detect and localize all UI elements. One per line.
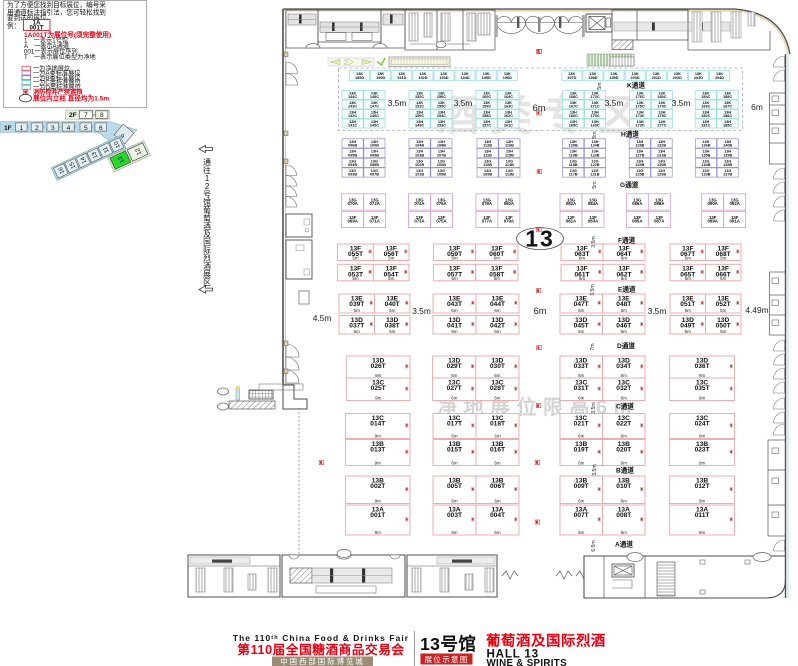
svg-text:8: 8 [100,112,104,119]
svg-text:9m: 9m [699,530,706,535]
svg-text:WINE & SPIRITS: WINE & SPIRITS [487,658,568,666]
svg-text:区: 区 [203,278,211,287]
svg-text:5m: 5m [720,308,727,313]
svg-text:108B: 108B [437,144,446,148]
svg-text:180C: 180C [657,95,666,99]
svg-text:076A: 076A [436,201,446,206]
svg-text:009T: 009T [574,483,589,490]
svg-text:175C: 175C [636,105,645,109]
svg-text:9m: 9m [699,461,706,466]
svg-text:106B: 106B [437,163,446,167]
svg-text:9m: 9m [699,373,706,378]
svg-text:080A: 080A [504,201,514,206]
svg-text:6m: 6m [451,434,458,439]
svg-text:155C: 155C [437,105,446,109]
svg-text:125B: 125B [635,173,644,177]
svg-text:112B: 112B [483,144,492,148]
svg-text:003T: 003T [447,512,462,519]
svg-text:178C: 178C [657,114,666,118]
svg-text:148C: 148C [370,95,379,99]
svg-text:040T: 040T [385,301,400,308]
svg-text:161C: 161C [504,124,513,128]
svg-text:6m: 6m [451,461,458,466]
svg-text:The 110th China Food & Drinks: The 110th China Food & Drinks Fair [233,633,409,643]
svg-text:036T: 036T [695,363,710,370]
svg-text:135B: 135B [701,153,710,157]
svg-text:077A: 077A [482,219,492,224]
svg-text:083A: 083A [588,219,598,224]
svg-text:B通道: B通道 [616,466,634,475]
svg-text:136B: 136B [701,144,710,148]
svg-text:173C: 173C [636,124,645,128]
svg-text:3.5m: 3.5m [590,284,596,296]
svg-text:012T: 012T [695,483,710,490]
svg-text:5: 5 [84,125,88,132]
svg-text:3: 3 [51,125,55,132]
svg-text:051T: 051T [680,301,695,308]
svg-text:195D: 195D [482,76,491,80]
svg-text:032T: 032T [616,385,631,392]
svg-text:147C: 147C [370,105,379,109]
svg-text:6m: 6m [621,434,628,439]
svg-text:5m: 5m [388,256,395,261]
svg-text:为了方便您找到目标展位，编号采: 为了方便您找到目标展位，编号采 [7,0,106,9]
svg-text:130B: 130B [657,163,666,167]
svg-text:143C: 143C [348,105,357,109]
svg-text:展位示意图: 展位示意图 [425,654,469,664]
svg-text:5m: 5m [352,276,359,281]
svg-text:197D: 197D [567,76,576,80]
svg-text:128B: 128B [635,144,644,148]
svg-text:13: 13 [525,226,555,252]
svg-text:069A: 069A [348,219,358,224]
svg-text:140B: 140B [723,144,732,148]
svg-text:075A: 075A [436,219,446,224]
svg-text:094B: 094B [348,163,357,167]
svg-text:120B: 120B [569,144,578,148]
svg-text:098B: 098B [370,163,379,167]
svg-text:021T: 021T [574,421,589,428]
svg-text:164C: 164C [504,95,513,99]
svg-text:024T: 024T [695,421,710,428]
svg-text:5m: 5m [597,82,603,89]
svg-text:002T: 002T [370,483,385,490]
svg-text:192D: 192D [418,76,427,80]
svg-text:101B: 101B [415,173,424,177]
svg-text:174C: 174C [636,114,645,118]
svg-text:190D: 190D [376,76,385,80]
svg-text:121B: 121B [590,173,599,177]
svg-text:089A: 089A [708,219,718,224]
svg-text:151C: 151C [415,105,424,109]
svg-text:5m: 5m [720,256,727,261]
svg-text:6m: 6m [578,396,585,401]
svg-text:中国西部国际博览城: 中国西部国际博览城 [280,657,365,666]
svg-text:129B: 129B [657,173,666,177]
svg-text:193D: 193D [439,76,448,80]
svg-text:044T: 044T [490,301,505,308]
svg-text:018T: 018T [490,421,505,428]
svg-text:123B: 123B [590,153,599,157]
svg-text:6m: 6m [578,329,585,334]
svg-text:9m: 9m [375,434,382,439]
svg-text:013T: 013T [370,447,385,454]
svg-text:105B: 105B [437,173,446,177]
svg-text:126B: 126B [635,163,644,167]
svg-text:6m: 6m [451,396,458,401]
svg-text:5m: 5m [388,276,395,281]
svg-text:9m: 9m [375,530,382,535]
svg-text:005T: 005T [447,483,462,490]
svg-text:6m: 6m [494,329,501,334]
svg-text:6m: 6m [578,461,585,466]
svg-text:079A: 079A [504,219,514,224]
svg-text:001T: 001T [370,512,385,519]
svg-text:162C: 162C [504,114,513,118]
svg-text:187C: 187C [723,105,732,109]
svg-text:152C: 152C [415,95,424,99]
svg-text:134B: 134B [701,163,710,167]
svg-text:182C: 182C [701,114,710,118]
svg-text:G通道: G通道 [620,180,639,189]
svg-text:033T: 033T [574,363,589,370]
svg-text:087A: 087A [654,219,664,224]
svg-text:F通道: F通道 [618,236,636,245]
svg-text:034T: 034T [616,363,631,370]
svg-text:3.5m: 3.5m [648,306,667,316]
svg-text:189D: 189D [355,76,364,80]
svg-text:122B: 122B [590,163,599,167]
svg-text:202D: 202D [673,76,682,80]
svg-text:4: 4 [67,125,71,132]
svg-text:023T: 023T [695,447,710,454]
svg-text:5m: 5m [592,131,598,138]
svg-text:177C: 177C [657,124,666,128]
svg-text:028T: 028T [490,385,505,392]
svg-text:039T: 039T [349,301,364,308]
svg-text:111B: 111B [483,153,492,157]
svg-text:096B: 096B [348,144,357,148]
svg-text:006T: 006T [490,483,505,490]
svg-text:100B: 100B [370,144,379,148]
svg-text:166C: 166C [569,114,578,118]
svg-text:6m: 6m [451,499,458,504]
svg-text:6m: 6m [621,308,628,313]
svg-text:2: 2 [35,125,39,132]
svg-text:5m: 5m [389,329,396,334]
svg-text:158C: 158C [482,114,491,118]
svg-text:017T: 017T [447,421,462,428]
svg-text:6m: 6m [579,276,586,281]
svg-text:6m: 6m [621,530,628,535]
svg-text:5m: 5m [685,256,692,261]
svg-text:176C: 176C [636,95,645,99]
svg-text:6m: 6m [621,396,628,401]
svg-text:022T: 022T [616,421,631,428]
svg-text:004T: 004T [490,512,505,519]
svg-text:198D: 198D [588,76,597,80]
svg-text:078A: 078A [482,201,492,206]
svg-text:073A: 073A [414,219,424,224]
svg-text:6m: 6m [494,256,501,261]
svg-text:6m: 6m [578,530,585,535]
svg-text:048T: 048T [616,301,631,308]
svg-text:6m: 6m [621,329,628,334]
svg-text:081A: 081A [566,219,576,224]
svg-text:194D: 194D [461,76,470,80]
svg-text:3.5m: 3.5m [592,464,598,476]
svg-text:3.5m: 3.5m [454,98,473,108]
svg-text:例：: 例： [7,21,20,30]
svg-text:183C: 183C [701,105,710,109]
svg-text:172C: 172C [591,95,600,99]
svg-text:6m: 6m [494,396,501,401]
svg-text:026T: 026T [371,363,386,370]
svg-text:5m: 5m [354,308,361,313]
svg-text:H通道: H通道 [621,130,639,139]
svg-text:6m: 6m [451,276,458,281]
svg-text:6m: 6m [578,499,585,504]
svg-text:184C: 184C [701,95,710,99]
svg-text:6m: 6m [494,308,501,313]
svg-text:6m: 6m [494,373,501,378]
svg-text:6m: 6m [578,373,585,378]
svg-text:124B: 124B [590,144,599,148]
svg-text:090A: 090A [708,201,718,206]
svg-text:088A: 088A [654,201,664,206]
svg-text:5m: 5m [354,329,361,334]
svg-text:114B: 114B [505,163,514,167]
svg-text:196D: 196D [503,76,512,80]
svg-text:030T: 030T [490,363,505,370]
svg-text:185C: 185C [723,124,732,128]
svg-text:6m: 6m [451,256,458,261]
svg-text:9m: 9m [375,373,382,378]
svg-text:169C: 169C [591,124,600,128]
svg-text:102B: 102B [415,163,424,167]
svg-text:031T: 031T [574,385,589,392]
svg-text:6m: 6m [494,434,501,439]
svg-text:138B: 138B [723,163,732,167]
svg-text:5m: 5m [592,181,598,188]
svg-text:3.5m: 3.5m [591,236,597,248]
svg-text:6m: 6m [621,461,628,466]
svg-text:145C: 145C [370,124,379,128]
svg-text:181C: 181C [701,124,710,128]
svg-text:154C: 154C [437,114,446,118]
svg-text:6m: 6m [494,276,501,281]
svg-text:070A: 070A [348,201,358,206]
svg-text:6m: 6m [451,373,458,378]
svg-text:043T: 043T [447,301,462,308]
svg-text:132B: 132B [657,144,666,148]
svg-text:141C: 141C [348,124,357,128]
svg-text:091A: 091A [730,219,740,224]
svg-text:9m: 9m [699,499,706,504]
svg-text:052T: 052T [716,301,731,308]
svg-text:200D: 200D [631,76,640,80]
svg-text:5m: 5m [389,308,396,313]
svg-text:展位内立柱 直径均为1.5m: 展位内立柱 直径均为1.5m [33,94,109,103]
svg-text:7m: 7m [590,343,596,350]
svg-text:179C: 179C [657,105,666,109]
svg-text:6m: 6m [578,308,585,313]
svg-text:D通道: D通道 [617,341,635,350]
svg-text:170C: 170C [591,114,600,118]
svg-text:144C: 144C [348,95,357,99]
svg-text:160C: 160C [482,95,491,99]
svg-text:001T: 001T [29,25,43,32]
svg-text:104B: 104B [415,144,424,148]
svg-text:118B: 118B [569,163,578,167]
svg-text:1: 1 [19,125,23,132]
svg-text:020T: 020T [616,447,631,454]
svg-text:A通道: A通道 [615,540,633,549]
svg-text:5m: 5m [720,276,727,281]
svg-text:5m: 5m [685,276,692,281]
svg-text:019T: 019T [574,447,589,454]
svg-text:119B: 119B [569,153,578,157]
svg-text:6: 6 [99,125,103,132]
svg-text:7: 7 [84,112,88,119]
svg-text:097B: 097B [370,173,379,177]
svg-text:150C: 150C [415,114,424,118]
svg-text:015T: 015T [447,447,462,454]
svg-text:027T: 027T [447,385,462,392]
svg-text:139B: 139B [723,153,732,157]
svg-text:4.49m: 4.49m [745,305,768,315]
svg-text:K通道: K通道 [627,81,645,90]
svg-text:191D: 191D [397,76,406,80]
svg-text:131B: 131B [657,153,666,157]
svg-text:4.5m: 4.5m [313,313,332,323]
svg-text:6m: 6m [621,373,628,378]
svg-text:007T: 007T [574,512,589,519]
svg-text:6m: 6m [494,461,501,466]
svg-text:6m: 6m [451,530,458,535]
svg-text:107B: 107B [437,153,446,157]
svg-text:T 一表示展位类型为净地: T 一表示展位类型为净地 [24,53,96,61]
svg-text:008T: 008T [616,512,631,519]
svg-text:2F: 2F [69,112,77,119]
svg-text:第110届全国糖酒商品交易会: 第110届全国糖酒商品交易会 [237,642,404,657]
svg-text:025T: 025T [371,385,386,392]
svg-text:071A: 071A [370,219,380,224]
svg-text:9m: 9m [375,499,382,504]
svg-text:093B: 093B [348,173,357,177]
svg-text:3.5m: 3.5m [672,98,691,108]
svg-text:127B: 127B [635,153,644,157]
svg-text:6m: 6m [494,499,501,504]
svg-text:137B: 137B [723,173,732,177]
svg-text:047T: 047T [574,301,589,308]
svg-text:6m: 6m [532,102,545,113]
svg-text:203D: 203D [694,76,703,80]
svg-text:3.5m: 3.5m [591,402,597,414]
svg-text:167C: 167C [569,105,578,109]
svg-text:1F: 1F [4,125,12,132]
svg-text:199D: 199D [609,76,618,80]
svg-text:5m: 5m [685,329,692,334]
svg-text:13号馆: 13号馆 [420,634,476,654]
svg-text:014T: 014T [370,421,385,428]
svg-text:6m: 6m [494,530,501,535]
svg-text:103B: 103B [415,153,424,157]
svg-text:110B: 110B [483,163,492,167]
svg-text:168C: 168C [569,95,578,99]
svg-text:010T: 010T [616,483,631,490]
svg-text:146C: 146C [370,114,379,118]
svg-text:9m: 9m [375,461,382,466]
svg-text:5m: 5m [685,308,692,313]
svg-text:153C: 153C [437,124,446,128]
svg-text:156C: 156C [437,95,446,99]
svg-text:029T: 029T [447,363,462,370]
svg-text:3.5m: 3.5m [605,98,624,108]
svg-text:3.5m: 3.5m [388,98,407,108]
svg-text:163C: 163C [504,105,513,109]
svg-text:085A: 085A [632,219,642,224]
svg-text:188C: 188C [723,95,732,99]
svg-text:084A: 084A [588,201,598,206]
svg-text:C通道: C通道 [616,402,634,411]
svg-text:149C: 149C [415,124,424,128]
svg-text:6m: 6m [451,308,458,313]
svg-text:201D: 201D [652,76,661,80]
svg-text:159C: 159C [482,105,491,109]
svg-text:095B: 095B [348,153,357,157]
svg-text:9m: 9m [699,434,706,439]
svg-text:115B: 115B [505,153,514,157]
svg-text:9m: 9m [375,396,382,401]
svg-text:6.5m: 6.5m [591,540,597,552]
svg-text:6m: 6m [751,102,763,112]
svg-text:6m: 6m [579,256,586,261]
svg-text:165C: 165C [569,124,578,128]
svg-text:171C: 171C [591,105,600,109]
svg-text:142C: 142C [348,114,357,118]
svg-text:9m: 9m [699,396,706,401]
svg-text:016T: 016T [490,447,505,454]
svg-text:6m: 6m [533,305,546,316]
svg-text:6m: 6m [451,329,458,334]
svg-text:6m: 6m [621,499,628,504]
svg-text:E通道: E通道 [618,285,636,294]
svg-text:092A: 092A [730,201,740,206]
svg-text:117B: 117B [569,173,578,177]
svg-text:6m: 6m [621,276,628,281]
svg-text:072A: 072A [370,201,380,206]
svg-text:3.5m: 3.5m [412,306,431,316]
svg-text:6m: 6m [578,434,585,439]
svg-text:204D: 204D [715,76,724,80]
svg-text:186C: 186C [723,114,732,118]
svg-text:099B: 099B [370,153,379,157]
svg-text:157C: 157C [482,124,491,128]
svg-text:6m: 6m [621,256,628,261]
svg-text:011T: 011T [695,512,710,519]
svg-text:5m: 5m [720,329,727,334]
svg-text:116B: 116B [505,144,514,148]
svg-text:074A: 074A [414,201,424,206]
svg-text:133B: 133B [701,173,710,177]
svg-text:109B: 109B [483,173,492,177]
svg-text:113B: 113B [505,173,514,177]
svg-text:082A: 082A [566,201,576,206]
svg-text:086A: 086A [632,201,642,206]
svg-text:035T: 035T [695,385,710,392]
svg-text:5m: 5m [352,256,359,261]
